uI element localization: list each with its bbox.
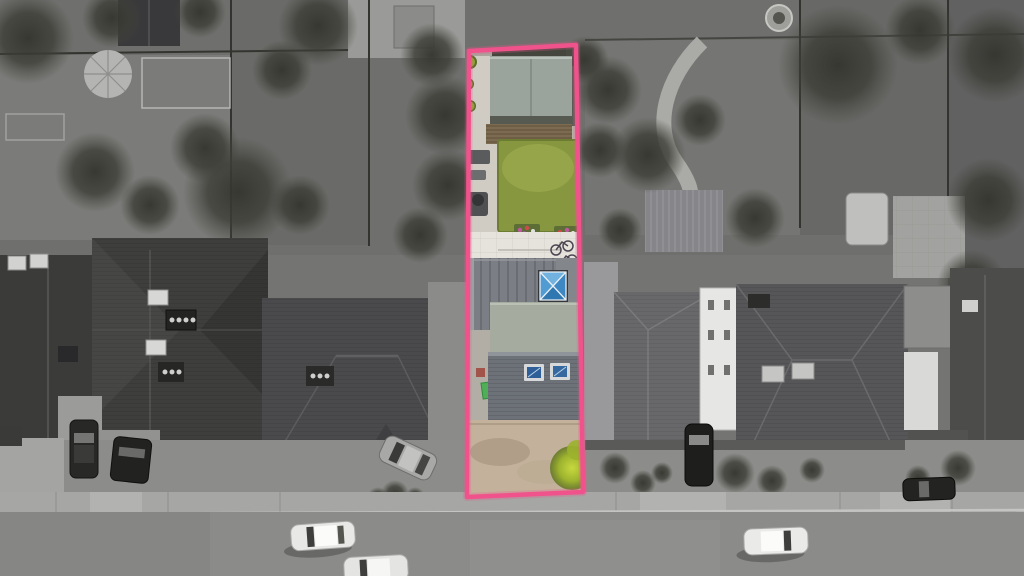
skylight	[962, 300, 978, 312]
skylight	[8, 256, 26, 270]
skylight	[30, 254, 48, 268]
skylight	[762, 366, 784, 382]
parasol-spokes	[84, 50, 132, 98]
chimney	[748, 294, 770, 308]
aerial-photo	[0, 0, 1024, 576]
skylight	[792, 363, 814, 379]
parked-car-dark	[110, 436, 152, 484]
aerial-photo-canvas	[0, 0, 1024, 576]
street-car-white	[343, 554, 408, 576]
white-wall	[904, 352, 938, 430]
flat-roof-sage	[490, 302, 582, 358]
white-gable-wall	[700, 288, 740, 430]
flat-garage	[904, 286, 952, 348]
roof-lantern	[538, 270, 568, 304]
front-hedge-line	[585, 440, 905, 450]
parked-car-dark	[903, 477, 956, 501]
caravan	[846, 193, 888, 245]
skylight	[148, 290, 168, 305]
chimney	[58, 346, 78, 362]
skylight	[146, 340, 166, 355]
parked-car-dark	[70, 420, 98, 478]
street-car-white	[736, 527, 809, 563]
parked-car-dark	[685, 424, 713, 486]
red-bin	[476, 368, 485, 377]
